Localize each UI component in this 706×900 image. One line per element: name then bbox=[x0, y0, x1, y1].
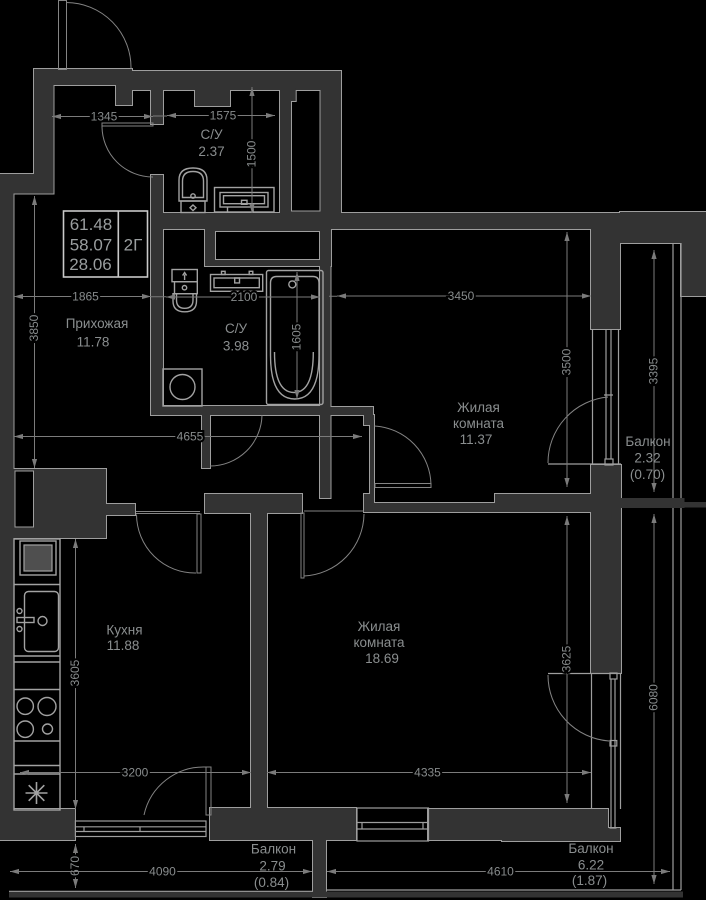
svg-text:61.48: 61.48 bbox=[70, 215, 113, 234]
svg-text:2.79: 2.79 bbox=[259, 859, 285, 874]
svg-text:11.37: 11.37 bbox=[460, 432, 493, 447]
svg-text:670: 670 bbox=[68, 856, 82, 876]
svg-text:2100: 2100 bbox=[231, 290, 258, 304]
svg-text:28.06: 28.06 bbox=[69, 255, 112, 274]
svg-text:Прихожая: Прихожая bbox=[66, 316, 129, 331]
svg-text:С/У: С/У bbox=[200, 127, 223, 142]
svg-text:3.98: 3.98 bbox=[223, 339, 249, 354]
svg-text:1575: 1575 bbox=[210, 109, 237, 123]
svg-text:(1.87): (1.87) bbox=[572, 873, 607, 888]
svg-text:Жилая: Жилая bbox=[358, 619, 401, 634]
svg-text:4655: 4655 bbox=[177, 430, 204, 444]
svg-text:6.22: 6.22 bbox=[578, 858, 604, 873]
svg-text:Балкон: Балкон bbox=[251, 842, 296, 857]
svg-text:3450: 3450 bbox=[448, 289, 475, 303]
svg-text:3200: 3200 bbox=[122, 766, 149, 780]
svg-text:11.78: 11.78 bbox=[77, 335, 110, 350]
svg-text:(0.70): (0.70) bbox=[630, 467, 665, 482]
svg-text:Жилая: Жилая bbox=[457, 400, 500, 415]
svg-text:58.07: 58.07 bbox=[70, 236, 113, 255]
svg-text:1605: 1605 bbox=[290, 323, 304, 350]
svg-text:Балкон: Балкон bbox=[625, 434, 670, 449]
svg-text:Кухня: Кухня bbox=[106, 623, 142, 638]
svg-text:С/У: С/У bbox=[225, 321, 248, 336]
svg-text:2.37: 2.37 bbox=[198, 144, 224, 159]
svg-text:4610: 4610 bbox=[487, 865, 514, 879]
svg-text:3605: 3605 bbox=[68, 659, 82, 686]
svg-text:4335: 4335 bbox=[414, 766, 441, 780]
svg-text:1345: 1345 bbox=[91, 110, 118, 124]
svg-text:1865: 1865 bbox=[72, 290, 99, 304]
svg-text:3395: 3395 bbox=[647, 357, 661, 384]
svg-text:3850: 3850 bbox=[27, 314, 41, 341]
svg-text:6080: 6080 bbox=[647, 684, 661, 711]
svg-text:11.88: 11.88 bbox=[107, 638, 140, 653]
svg-text:(0.84): (0.84) bbox=[254, 875, 289, 890]
svg-text:4090: 4090 bbox=[149, 865, 176, 879]
svg-text:3625: 3625 bbox=[560, 645, 574, 672]
svg-text:2.32: 2.32 bbox=[634, 451, 660, 466]
svg-text:3500: 3500 bbox=[560, 348, 574, 375]
svg-text:18.69: 18.69 bbox=[365, 651, 399, 666]
svg-text:комната: комната bbox=[353, 635, 405, 650]
svg-text:Балкон: Балкон bbox=[568, 841, 613, 856]
svg-text:2Г: 2Г bbox=[124, 236, 143, 255]
svg-text:комната: комната bbox=[453, 416, 505, 431]
svg-text:1500: 1500 bbox=[245, 140, 259, 167]
